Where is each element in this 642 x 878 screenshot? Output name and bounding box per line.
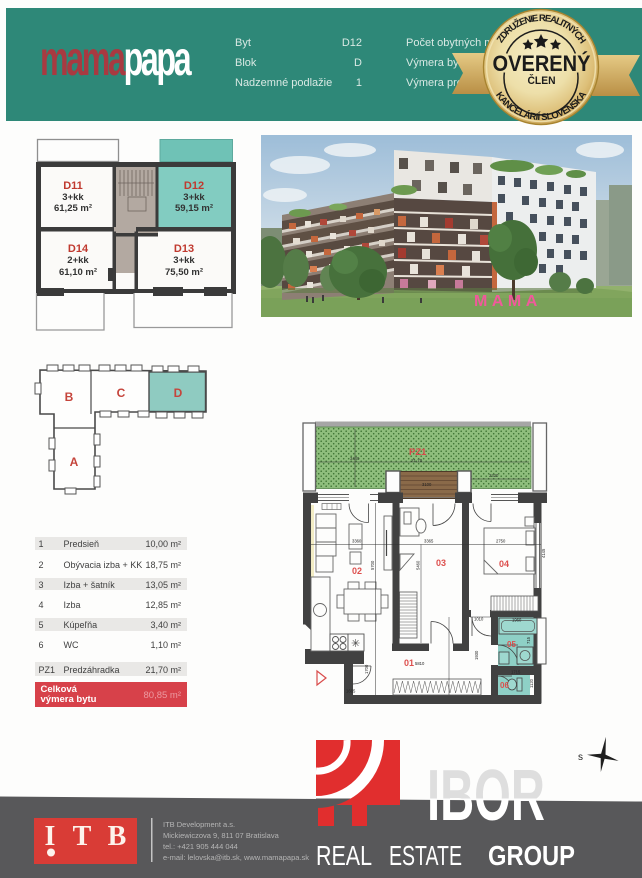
svg-text:MAMA: MAMA	[474, 293, 542, 310]
svg-text:61,10 m²: 61,10 m²	[59, 267, 97, 278]
svg-text:1715: 1715	[511, 670, 521, 675]
svg-text:2+kk: 2+kk	[67, 255, 89, 266]
svg-text:05: 05	[507, 640, 516, 649]
svg-text:PZ1: PZ1	[409, 447, 427, 458]
svg-text:2320: 2320	[489, 473, 499, 478]
svg-text:03: 03	[436, 558, 446, 568]
svg-text:3+kk: 3+kk	[183, 192, 205, 203]
svg-text:02: 02	[352, 566, 362, 576]
svg-text:61,25 m²: 61,25 m²	[54, 203, 92, 214]
svg-text:D13: D13	[174, 243, 194, 255]
svg-text:715: 715	[526, 636, 531, 644]
svg-text:3365: 3365	[424, 539, 434, 544]
svg-text:3360: 3360	[352, 539, 362, 544]
svg-text:tel.: +421 905 444 044: tel.: +421 905 444 044	[163, 842, 238, 851]
svg-text:s: s	[578, 752, 583, 763]
svg-text:D14: D14	[68, 243, 89, 255]
svg-text:T: T	[73, 821, 92, 852]
svg-text:✳: ✳	[351, 638, 360, 650]
svg-text:1960: 1960	[512, 618, 522, 623]
svg-text:B: B	[65, 390, 74, 404]
svg-text:01: 01	[404, 658, 414, 668]
svg-text:1930: 1930	[474, 650, 479, 660]
svg-text:06: 06	[500, 681, 509, 690]
svg-text:1700: 1700	[364, 664, 369, 674]
svg-text:D: D	[174, 386, 183, 400]
svg-text:04: 04	[499, 559, 509, 569]
svg-text:5460: 5460	[416, 560, 421, 570]
svg-text:5700: 5700	[370, 560, 375, 570]
svg-text:ČLEN: ČLEN	[528, 74, 556, 87]
svg-text:A: A	[70, 455, 79, 469]
svg-text:D12: D12	[184, 180, 204, 192]
svg-text:REAL: REAL	[316, 840, 372, 871]
svg-text:C: C	[117, 386, 126, 400]
svg-text:1120: 1120	[529, 678, 534, 688]
svg-text:4145: 4145	[541, 548, 546, 558]
svg-text:59,15 m²: 59,15 m²	[175, 203, 213, 214]
svg-text:3+kk: 3+kk	[62, 192, 84, 203]
svg-text:ITB Development a.s.: ITB Development a.s.	[163, 820, 235, 829]
svg-text:e-mail: lelovska@itb.sk, www.m: e-mail: lelovska@itb.sk, www.mamapapa.sk	[163, 853, 309, 862]
svg-text:D11: D11	[63, 180, 83, 192]
svg-text:3+kk: 3+kk	[173, 255, 195, 266]
svg-text:5810: 5810	[415, 661, 425, 666]
svg-text:B: B	[108, 821, 127, 852]
svg-text:GROUP: GROUP	[488, 840, 575, 871]
svg-text:2750: 2750	[496, 539, 506, 544]
svg-text:75,50 m²: 75,50 m²	[165, 267, 203, 278]
svg-text:1665: 1665	[346, 689, 356, 694]
svg-text:3440: 3440	[350, 456, 360, 461]
svg-text:Mickiewiczova 9, 811 07 Bratis: Mickiewiczova 9, 811 07 Bratislava	[163, 831, 280, 840]
svg-text:1010: 1010	[474, 617, 484, 622]
svg-text:I: I	[45, 821, 56, 852]
svg-text:ESTATE: ESTATE	[389, 840, 462, 871]
svg-text:3100: 3100	[422, 482, 432, 487]
svg-text:21,70: 21,70	[411, 458, 423, 463]
svg-text:OVERENÝ: OVERENÝ	[493, 51, 591, 76]
